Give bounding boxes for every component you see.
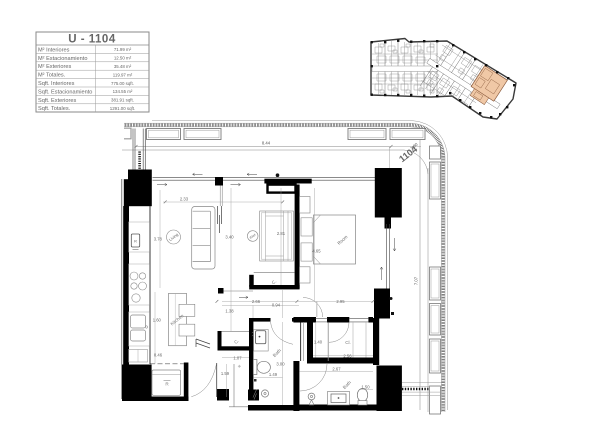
svg-text:1291.00 sqft.: 1291.00 sqft. [110,106,135,111]
svg-text:2.67: 2.67 [332,367,341,372]
svg-text:1.07: 1.07 [233,356,242,361]
svg-text:Bath: Bath [272,348,283,359]
svg-text:1.49: 1.49 [269,372,278,377]
svg-text:0.46: 0.46 [154,352,163,357]
svg-text:134.55 m²: 134.55 m² [113,89,133,94]
svg-text:Sqft. Interiores: Sqft. Interiores [38,81,75,87]
svg-text:w: w [237,364,242,369]
svg-text:7.07: 7.07 [414,276,419,285]
svg-text:R: R [134,240,137,244]
svg-text:3.78: 3.78 [154,236,163,241]
svg-text:Sqft. Totales.: Sqft. Totales. [38,106,71,112]
svg-text:381.91 sqft.: 381.91 sqft. [111,98,134,103]
svg-text:71.99 m²: 71.99 m² [114,47,132,52]
svg-text:4.65: 4.65 [312,249,321,254]
svg-text:2.66: 2.66 [252,299,261,304]
svg-text:C.: C. [271,279,278,286]
svg-text:8.44: 8.44 [262,141,271,146]
svg-text:1.50: 1.50 [361,385,370,390]
svg-text:C.: C. [233,338,240,345]
svg-text:35.48 m²: 35.48 m² [114,64,132,69]
svg-text:3.40: 3.40 [225,234,234,239]
svg-text:1.38: 1.38 [225,308,234,313]
svg-text:M² Exteriores: M² Exteriores [38,64,71,70]
svg-text:0.94: 0.94 [272,302,281,307]
svg-text:Flex: Flex [249,233,257,240]
svg-text:M² Estacionamiento: M² Estacionamiento [38,56,87,62]
svg-text:Cl.: Cl. [345,340,351,345]
svg-text:12.50 m²: 12.50 m² [114,56,132,61]
svg-text:775.00 sqft.: 775.00 sqft. [111,81,134,86]
svg-text:2.56: 2.56 [343,354,352,359]
svg-text:Sqft. Exteriores: Sqft. Exteriores [38,98,76,104]
svg-text:2.81: 2.81 [277,231,286,236]
svg-text:Bath: Bath [342,380,353,391]
svg-text:Sqft. Estacionamiento: Sqft. Estacionamiento [38,89,92,95]
svg-text:1.60: 1.60 [153,317,162,322]
svg-text:M² Interiores: M² Interiores [38,47,70,53]
svg-text:Living: Living [168,232,179,242]
svg-text:3.00: 3.00 [276,362,285,367]
svg-text:1.59: 1.59 [221,371,230,376]
svg-text:2.95: 2.95 [336,299,345,304]
svg-text:M² Totales.: M² Totales. [38,73,66,79]
svg-text:U - 1104: U - 1104 [68,34,116,46]
svg-text:119.97 m²: 119.97 m² [113,72,133,77]
svg-text:1.40: 1.40 [314,340,323,345]
svg-text:2.33: 2.33 [180,197,189,202]
